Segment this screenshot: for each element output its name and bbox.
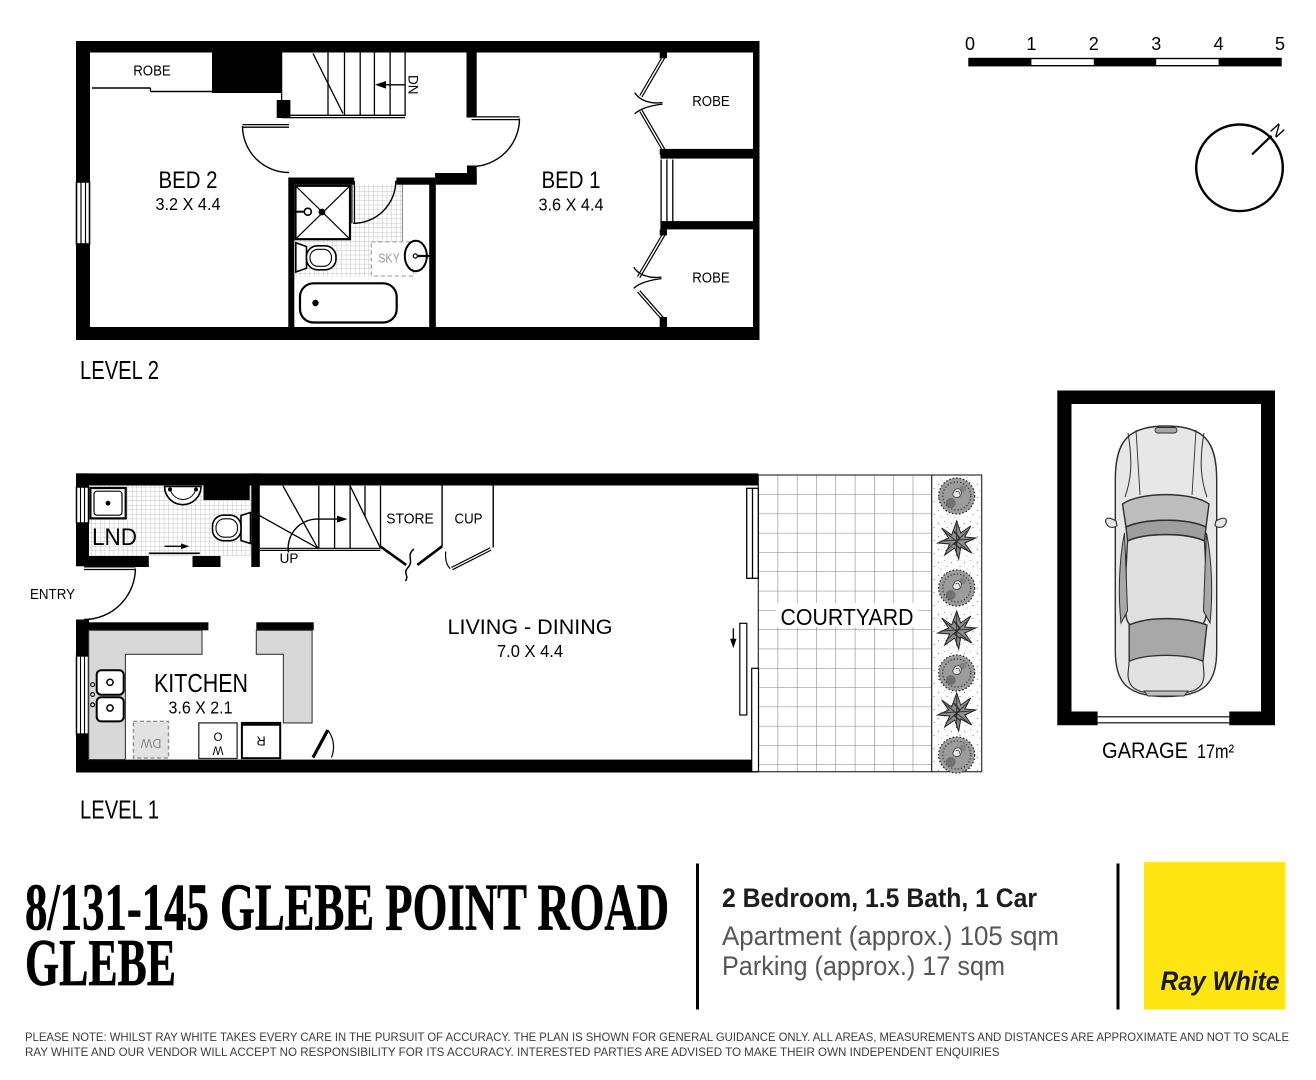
svg-text:3.2 X 4.4: 3.2 X 4.4 — [156, 194, 221, 214]
svg-text:ENTRY: ENTRY — [30, 587, 75, 603]
svg-text:DN: DN — [405, 75, 420, 95]
svg-text:3.6 X 4.4: 3.6 X 4.4 — [539, 195, 604, 215]
svg-text:4: 4 — [1214, 34, 1224, 54]
svg-text:2 Bedroom, 1.5 Bath, 1 Car: 2 Bedroom, 1.5 Bath, 1 Car — [722, 883, 1037, 913]
svg-text:2: 2 — [1089, 34, 1099, 54]
svg-text:5: 5 — [1275, 34, 1285, 54]
svg-text:GLEBE: GLEBE — [25, 926, 176, 1000]
svg-text:Apartment (approx.) 105 sqm: Apartment (approx.) 105 sqm — [722, 921, 1059, 951]
svg-text:RAY WHITE AND OUR VENDOR WILL: RAY WHITE AND OUR VENDOR WILL ACCEPT NO … — [25, 1046, 1000, 1059]
svg-text:STORE: STORE — [386, 512, 434, 528]
svg-text:PLEASE NOTE: WHILST RAY WHITE: PLEASE NOTE: WHILST RAY WHITE TAKES EVER… — [25, 1031, 1289, 1044]
svg-text:KITCHEN: KITCHEN — [154, 668, 248, 698]
svg-text:O: O — [213, 730, 222, 742]
svg-text:Parking (approx.) 17 sqm: Parking (approx.) 17 sqm — [722, 951, 1005, 981]
svg-text:LIVING - DINING: LIVING - DINING — [448, 616, 613, 639]
svg-text:3: 3 — [1151, 34, 1161, 54]
svg-text:W: W — [212, 744, 223, 756]
svg-text:17m²: 17m² — [1197, 742, 1234, 763]
svg-text:7.0 X 4.4: 7.0 X 4.4 — [497, 641, 563, 661]
svg-text:ROBE: ROBE — [692, 94, 730, 110]
svg-text:BED 1: BED 1 — [542, 167, 601, 194]
svg-text:BED 2: BED 2 — [159, 167, 218, 194]
svg-text:CUP: CUP — [455, 512, 483, 528]
svg-text:UP: UP — [280, 551, 299, 566]
svg-text:0: 0 — [965, 34, 975, 54]
svg-text:ROBE: ROBE — [133, 64, 171, 80]
svg-text:1: 1 — [1026, 34, 1036, 54]
svg-text:Ray White: Ray White — [1161, 966, 1280, 996]
svg-text:R: R — [256, 734, 265, 749]
svg-text:SKY: SKY — [378, 252, 400, 266]
svg-text:3.6 X 2.1: 3.6 X 2.1 — [169, 698, 233, 718]
svg-text:ROBE: ROBE — [692, 271, 730, 287]
svg-text:COURTYARD: COURTYARD — [781, 604, 914, 630]
svg-text:LEVEL 2: LEVEL 2 — [80, 357, 159, 385]
svg-text:LEVEL 1: LEVEL 1 — [80, 797, 159, 825]
svg-text:LND: LND — [92, 524, 137, 551]
svg-text:DW: DW — [140, 736, 161, 750]
svg-text:GARAGE: GARAGE — [1102, 738, 1188, 763]
